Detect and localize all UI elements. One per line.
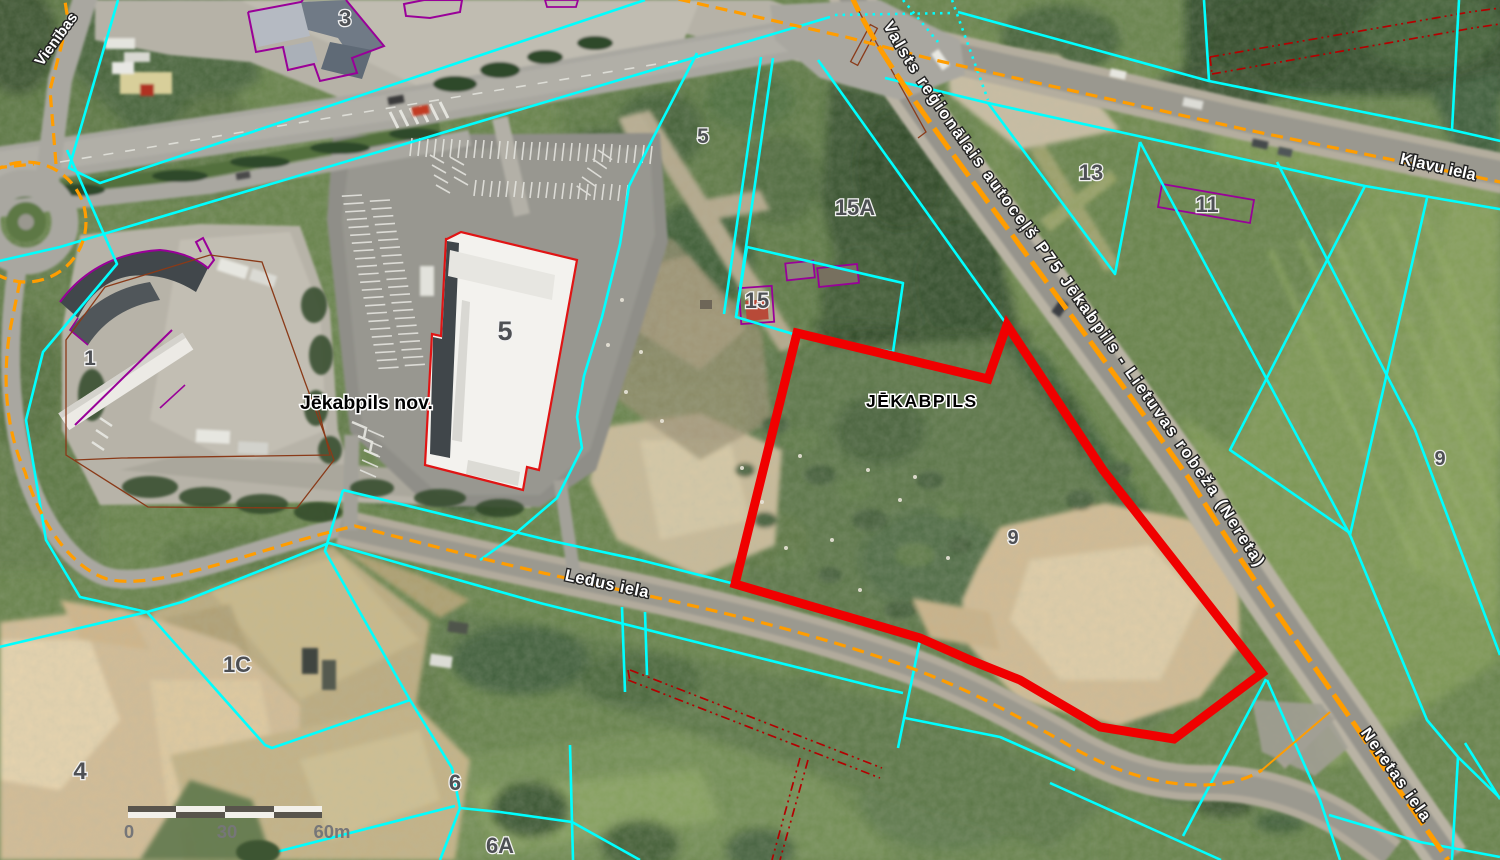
svg-text:1: 1 <box>84 347 96 370</box>
svg-text:9: 9 <box>1007 527 1018 549</box>
svg-text:4: 4 <box>73 758 87 785</box>
svg-text:0: 0 <box>124 821 134 842</box>
svg-text:30: 30 <box>217 821 238 842</box>
svg-text:6A: 6A <box>486 833 514 858</box>
svg-text:3: 3 <box>339 5 352 31</box>
svg-text:JĒKABPILS: JĒKABPILS <box>866 391 978 411</box>
svg-text:1C: 1C <box>223 652 251 677</box>
svg-text:13: 13 <box>1079 160 1103 185</box>
svg-text:5: 5 <box>497 316 512 346</box>
svg-text:5: 5 <box>697 125 709 148</box>
svg-text:15A: 15A <box>835 195 875 220</box>
svg-text:9: 9 <box>1434 448 1445 470</box>
svg-text:Jēkabpils nov.: Jēkabpils nov. <box>300 392 433 414</box>
svg-text:60m: 60m <box>313 821 350 842</box>
svg-text:15: 15 <box>745 288 769 313</box>
svg-text:6: 6 <box>449 770 461 795</box>
svg-text:11: 11 <box>1195 192 1218 217</box>
